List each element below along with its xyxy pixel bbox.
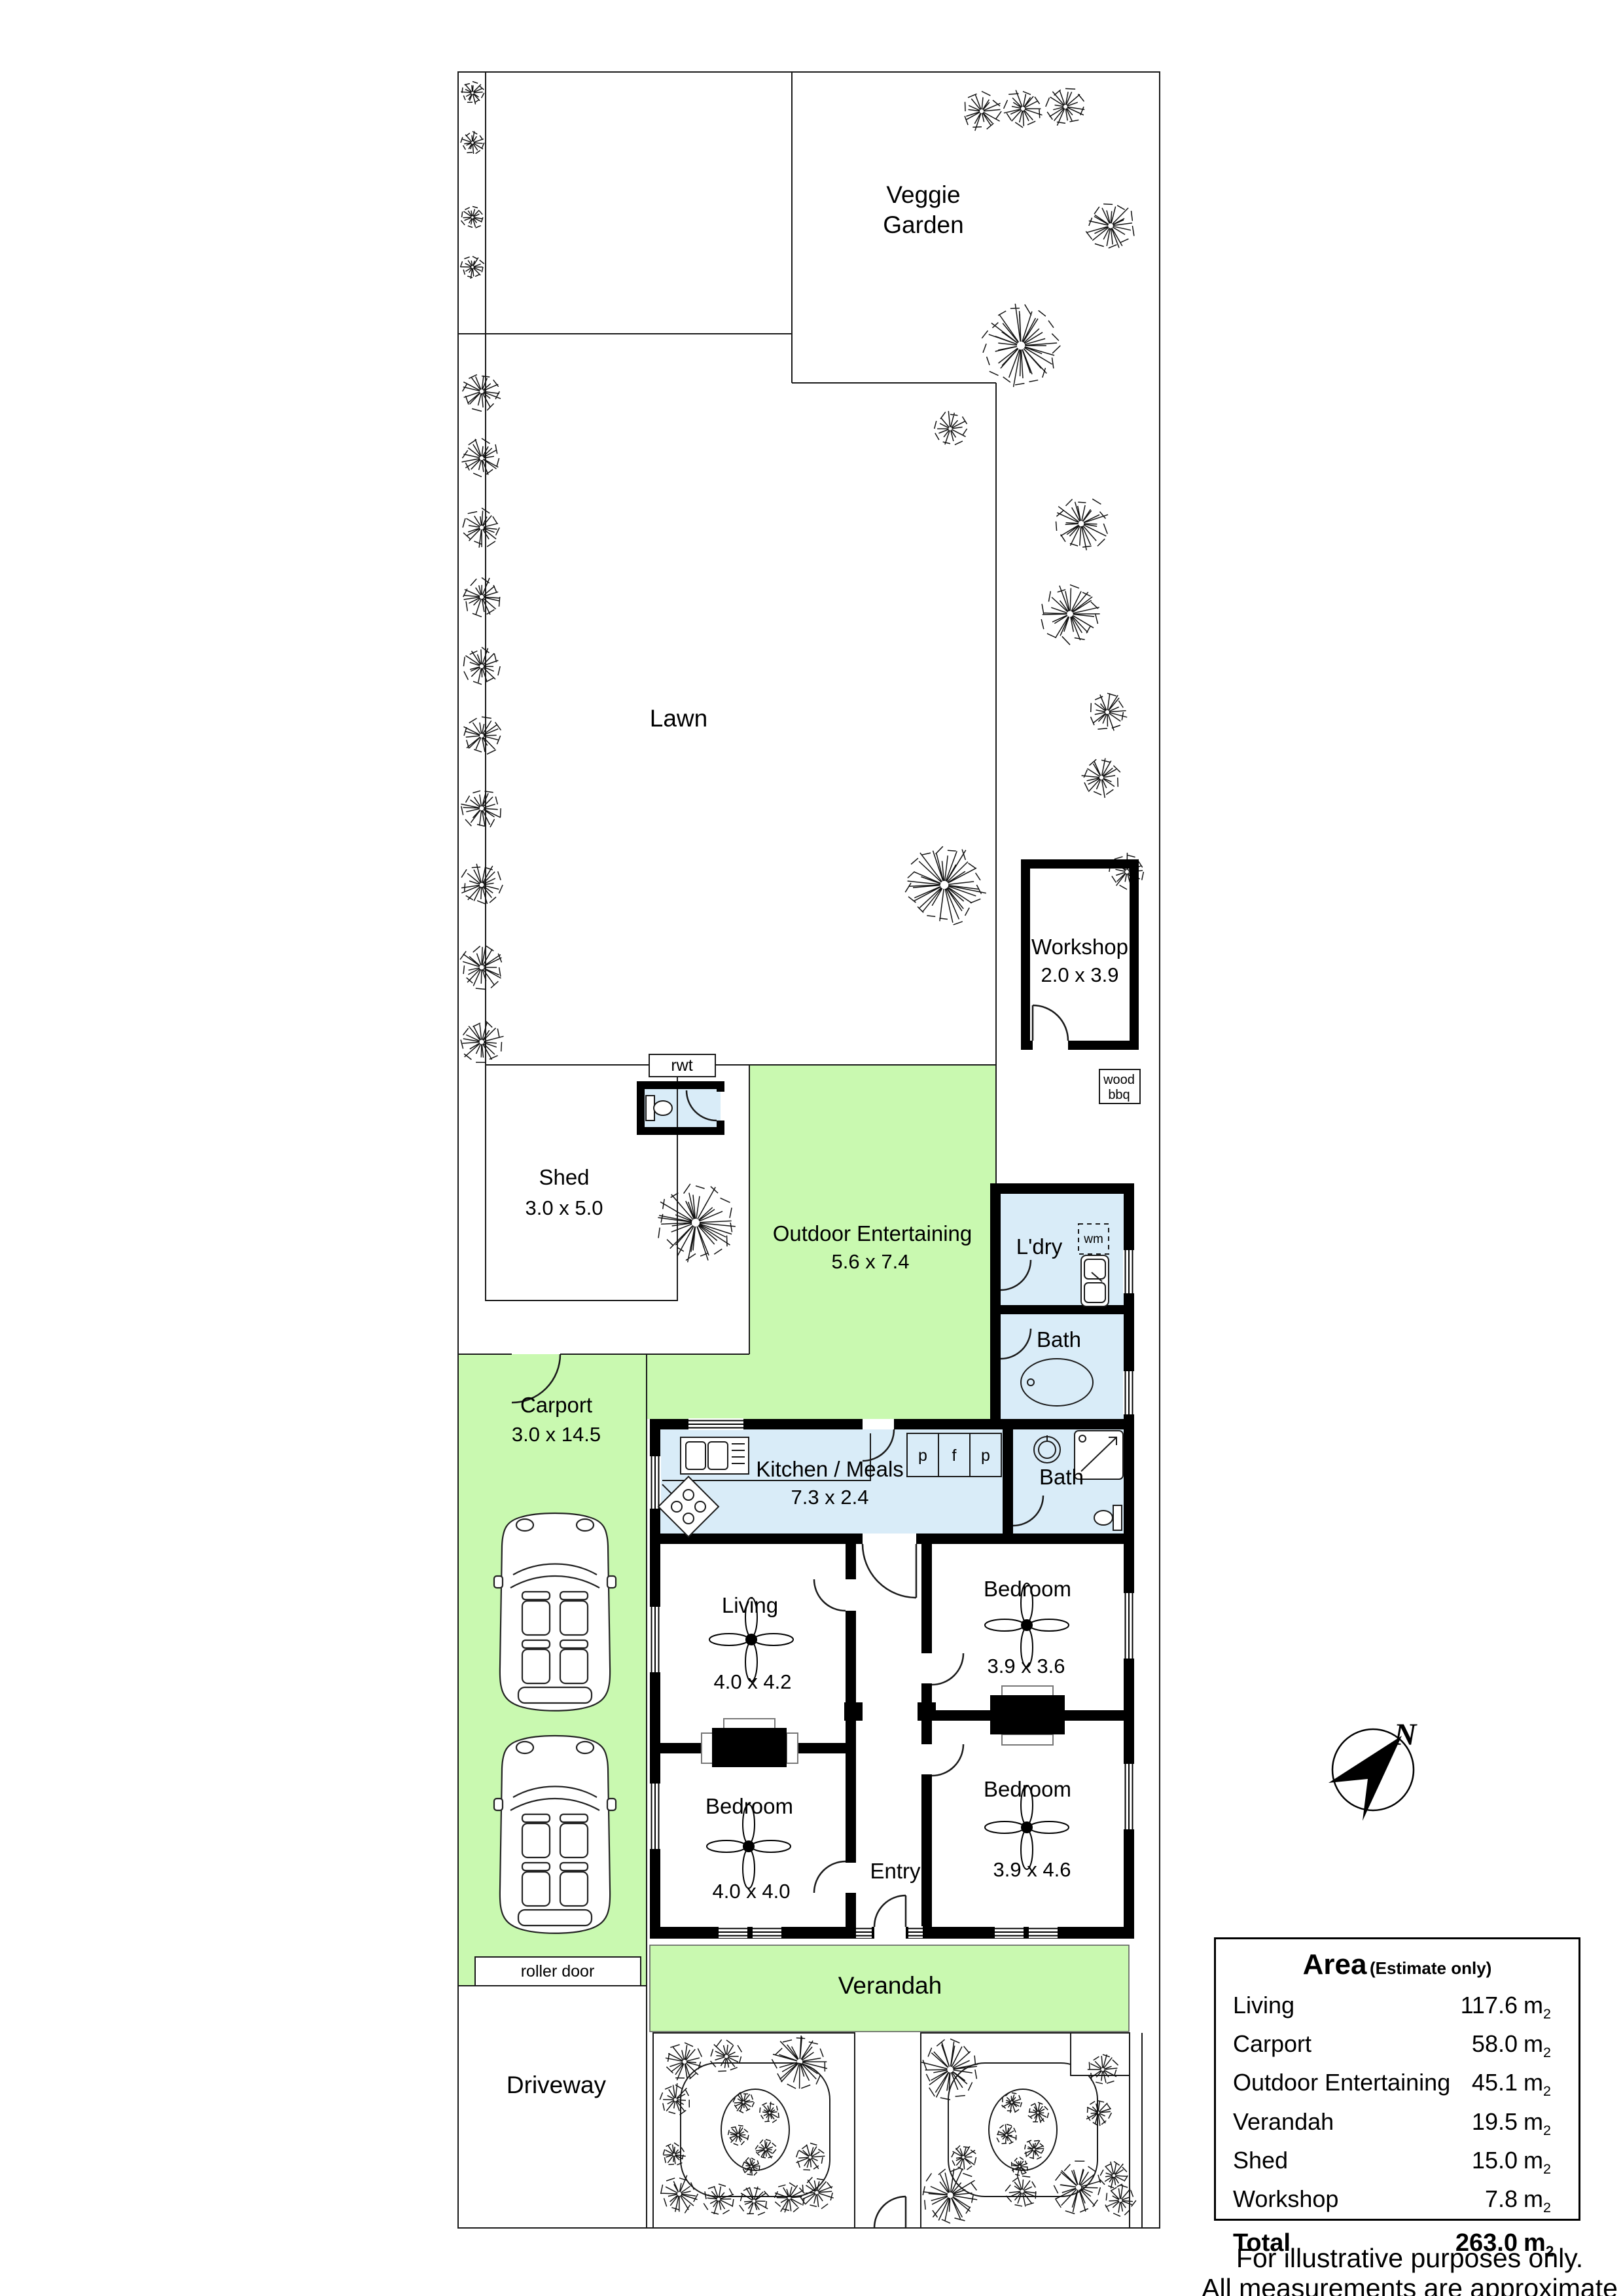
label-bedroom-front-dims: 3.9 x 4.6 [993,1858,1071,1881]
area-row: Carport58.0m2 [1233,2029,1561,2068]
window-icon [649,1607,661,1672]
tree-icon [905,846,986,925]
label-verandah: Verandah [838,1972,942,1999]
area-row: Shed15.0m2 [1233,2145,1561,2184]
fireplace-hearth [787,1733,798,1763]
label-outdoor-entertaining: Outdoor Entertaining [773,1221,972,1246]
area-subtitle-text: (Estimate only) [1370,1958,1491,1978]
door-arc-icon [814,1861,846,1893]
window-icon [649,1456,661,1509]
area-row: Workshop7.8m2 [1233,2184,1561,2223]
label-veggie-garden-1: Veggie [886,181,960,208]
tree-icon [935,411,967,445]
garden-path-ring-left [681,2063,830,2197]
label-kitchen-dims: 7.3 x 2.4 [791,1486,869,1509]
area-row: Outdoor Entertaining45.1m2 [1233,2068,1561,2106]
tree-icon [1056,499,1109,550]
tree-icon [461,791,501,827]
area-row: Living117.6m2 [1233,1990,1561,2029]
tree-icon [796,2143,825,2170]
window-icon [649,1784,661,1849]
garden-island-right [989,2089,1057,2170]
tree-icon [740,2187,770,2215]
label-veggie-garden-2: Garden [883,211,963,238]
tree-icon [755,2140,776,2159]
tree-icon [461,864,503,904]
window-icon [908,1926,923,1938]
tree-icon [460,946,501,990]
tree-icon [660,2083,689,2115]
label-wood-bbq-1: wood [1103,1073,1135,1087]
tree-icon [711,2039,742,2071]
label-bedroom-left-dims: 4.0 x 4.0 [713,1880,791,1903]
tree-icon [774,2183,804,2212]
footer-line-2: All measurements are approximate [1161,2274,1623,2296]
label-carport: Carport [520,1393,592,1417]
footer-line-1: For illustrative purposes only. [1161,2244,1623,2274]
label-bedroom-rear: Bedroom [984,1577,1071,1601]
window-icon [1123,1593,1135,1659]
tree-icon [461,82,484,105]
label-lawn: Lawn [650,705,707,732]
door-arc-icon [814,1579,846,1611]
region-green-connector [647,1354,749,1419]
label-pantry-2: p [981,1446,990,1465]
tree-icon [463,508,499,548]
laundry-trough-icon [1081,1255,1109,1306]
fireplace-icon [990,1695,1065,1734]
label-bedroom-rear-dims: 3.9 x 3.6 [988,1655,1065,1677]
label-living: Living [722,1593,778,1617]
tree-icon [461,206,483,228]
label-pantry-1: p [918,1446,927,1465]
tree-icon [1082,759,1120,798]
label-bath-rear: Bath [1037,1327,1081,1352]
tree-icon [463,578,501,617]
tree-icon [997,2125,1016,2144]
window-icon [995,1926,1024,1938]
bathtub-icon [1021,1359,1093,1406]
tree-icon [1054,2161,1101,2214]
fireplace-icon [712,1728,787,1767]
tree-icon [1024,2140,1044,2159]
tree-icon [1086,204,1134,249]
tree-icon [461,1021,503,1063]
footer-note: For illustrative purposes only. All meas… [1161,2244,1623,2296]
tree-icon [463,374,501,411]
tree-icon [1041,584,1099,645]
door-arc-icon [932,1653,963,1685]
area-table-rows: Living117.6m2Carport58.0m2Outdoor Entert… [1233,1990,1561,2267]
tree-icon [800,2178,834,2209]
area-table: Area (Estimate only) Living117.6m2Carpor… [1214,1937,1580,2221]
tree-icon [704,2184,734,2214]
sink-icon [681,1437,749,1474]
label-living-dims: 4.0 x 4.2 [714,1670,792,1693]
tree-icon [1086,2101,1111,2126]
tree-icon [460,257,484,279]
label-washing-machine: wm [1083,1232,1103,1246]
garden-island-left [721,2089,789,2170]
tree-icon [728,2125,749,2145]
label-workshop-dims: 2.0 x 3.9 [1041,963,1119,986]
tree-icon [965,92,1001,131]
tree-icon [666,2043,702,2080]
car-icon [494,1736,616,1933]
label-carport-dims: 3.0 x 14.5 [512,1423,601,1446]
label-outdoor-entertaining-dims: 5.6 x 7.4 [832,1250,910,1273]
door-arc-icon [863,1544,916,1598]
tree-icon [923,2168,977,2223]
fireplace-hearth [724,1719,775,1729]
fireplaces [702,1686,1065,1767]
tree-icon [742,2157,760,2176]
tree-icon [463,647,500,685]
tree-icon [1028,2102,1048,2123]
fireplace-hearth [702,1733,713,1763]
tree-icon [1012,2157,1027,2176]
window-icon [1029,1926,1058,1938]
label-roller-door: roller door [521,1962,595,1981]
tree-icon [760,2102,779,2123]
tree-icon [1105,2185,1136,2216]
tree-icon [982,304,1060,387]
window-icon [719,1926,747,1938]
tree-icon [660,2176,698,2214]
tree-icon [462,439,499,477]
label-driveway: Driveway [507,2072,607,2098]
door-arc-icon [874,1895,906,1927]
tree-icon [952,2145,976,2170]
tree-icon [663,2143,685,2165]
tree-icon [1004,90,1043,128]
label-shed: Shed [539,1165,589,1189]
label-bath-front: Bath [1039,1465,1084,1489]
tree-icon [658,1184,735,1263]
compass-rose: N [1329,1717,1418,1821]
area-row: Verandah19.5m2 [1233,2107,1561,2145]
tree-icon [464,717,501,754]
label-bedroom-front: Bedroom [984,1777,1071,1801]
window-icon [856,1926,872,1938]
label-wood-bbq-2: bbq [1108,1088,1130,1102]
window-icon [1123,1371,1135,1414]
label-fridge: f [952,1446,957,1465]
label-laundry: L'dry [1016,1234,1063,1259]
area-title-text: Area [1303,1948,1367,1981]
door-arc-icon [1033,1005,1068,1041]
fireplace-hearth [1002,1686,1053,1696]
label-rwt: rwt [671,1056,692,1075]
window-icon [753,1926,781,1938]
tree-icon [1046,88,1084,125]
fireplace-hearth [1002,1734,1053,1745]
tree-icon [1100,2161,1128,2188]
label-entry: Entry [870,1859,921,1883]
floor-plan-page: N Veggie Garden Lawn Workshop 2.0 x 3.9 … [0,0,1623,2296]
label-shed-dims: 3.0 x 5.0 [526,1196,603,1219]
tree-icon [1091,693,1128,730]
area-table-title: Area (Estimate only) [1233,1948,1561,1981]
compass-north-label: N [1393,1717,1418,1752]
window-icon [1123,1250,1135,1293]
window-icon [1123,1764,1135,1829]
tree-icon [461,132,484,154]
label-workshop: Workshop [1031,935,1128,959]
label-kitchen: Kitchen / Meals [756,1457,904,1481]
door-arc-icon [874,2197,906,2228]
window-icon [688,1418,743,1430]
compass-needle-icon [1329,1736,1402,1821]
label-bedroom-left: Bedroom [705,1794,793,1818]
door-arc-icon [932,1744,963,1776]
car-icon [494,1513,616,1711]
tree-icon [772,2036,827,2089]
tree-icon [1005,2175,1037,2206]
